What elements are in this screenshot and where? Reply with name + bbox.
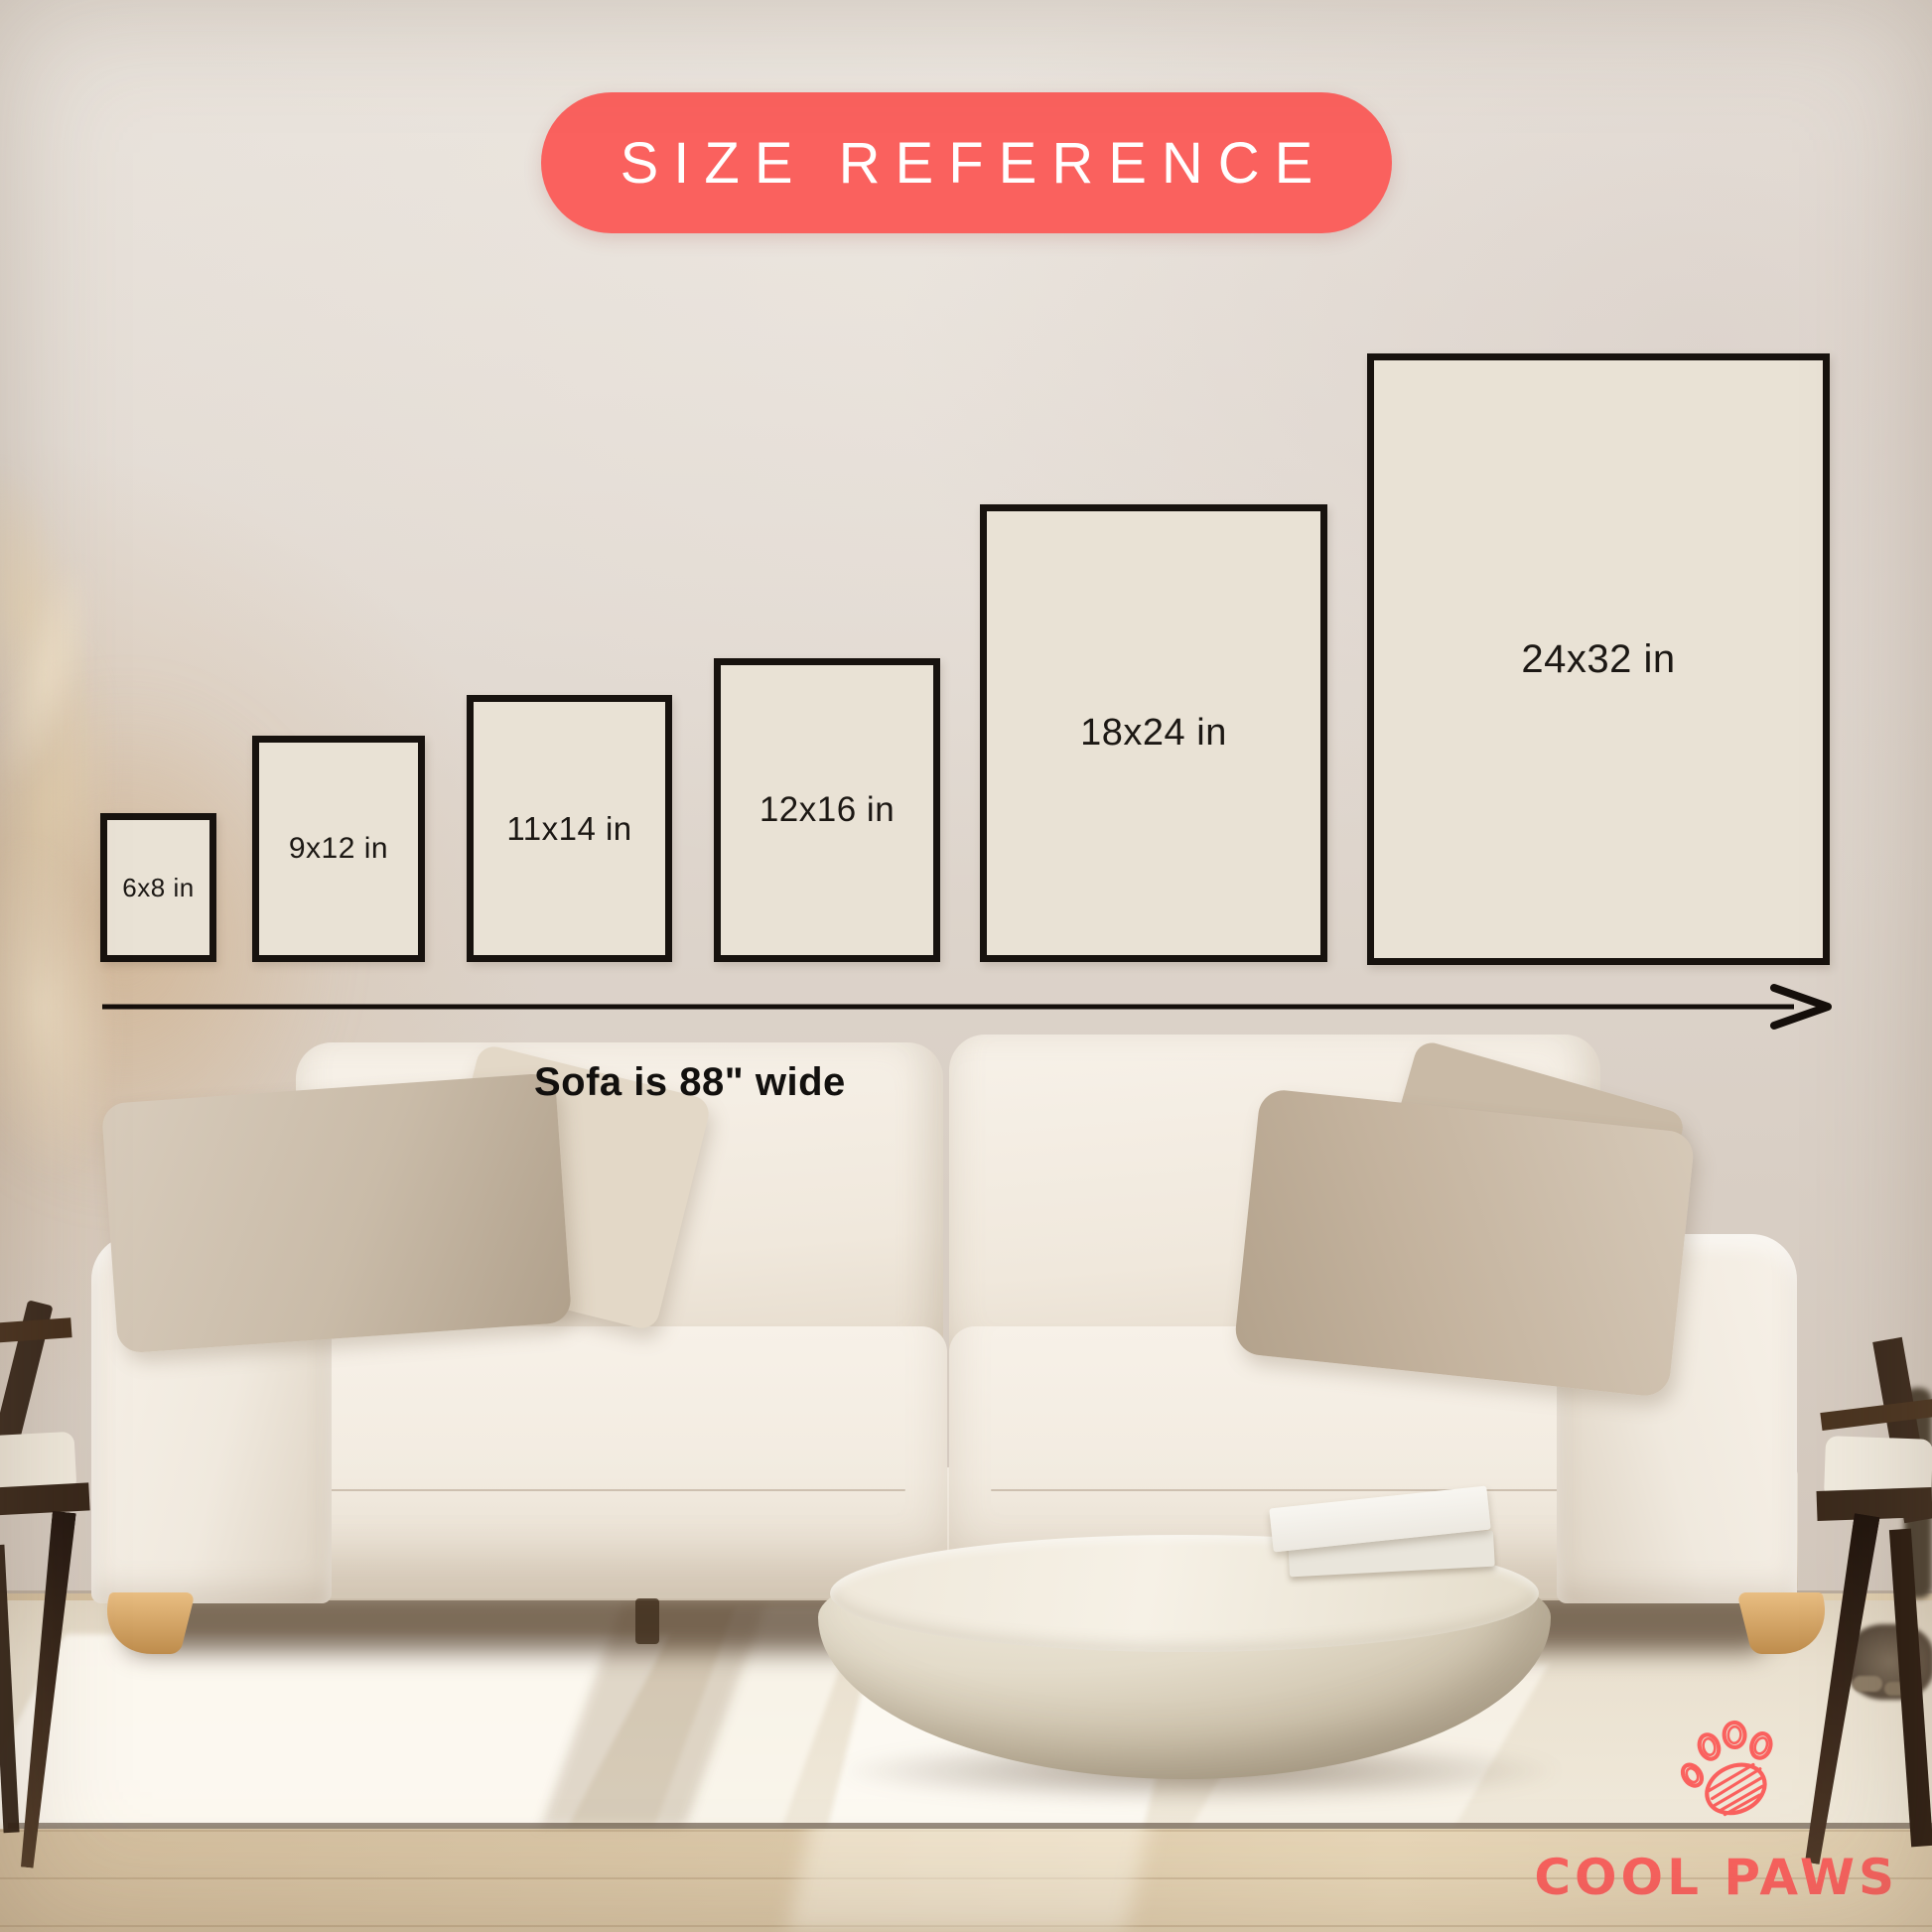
size-reference-graphic: SIZE REFERENCE 6x8 in 9x12 in 11x14 in 1…	[0, 0, 1932, 1932]
size-label: 12x16 in	[759, 790, 895, 830]
size-reference-badge: SIZE REFERENCE	[541, 92, 1392, 233]
size-frame-24x32: 24x32 in	[1367, 353, 1830, 965]
brand-name: COOL PAWS	[1534, 1849, 1898, 1906]
size-frame-12x16: 12x16 in	[714, 658, 940, 962]
throw-pillow	[101, 1072, 572, 1353]
size-frame-18x24: 18x24 in	[980, 504, 1327, 962]
left-chair-seat-frame	[0, 1482, 90, 1515]
size-label: 24x32 in	[1521, 637, 1675, 682]
right-chair-seat-frame	[1817, 1487, 1932, 1521]
sofa-leg	[635, 1598, 659, 1644]
size-label: 18x24 in	[1080, 712, 1227, 755]
cat-paw	[1853, 1676, 1882, 1692]
size-label: 11x14 in	[506, 810, 631, 848]
size-label: 6x8 in	[122, 873, 194, 903]
size-label: 9x12 in	[289, 832, 388, 866]
rug-edge-line	[8, 1823, 1932, 1829]
size-frame-6x8: 6x8 in	[100, 813, 216, 962]
throw-pillow	[1233, 1088, 1696, 1399]
width-arrow-icon	[94, 981, 1842, 1033]
sofa-seat-cushion-left	[246, 1326, 947, 1598]
size-frame-11x14: 11x14 in	[467, 695, 672, 962]
paw-print-icon	[1671, 1715, 1787, 1831]
size-frame-9x12: 9x12 in	[252, 736, 425, 962]
size-reference-title: SIZE REFERENCE	[606, 130, 1328, 197]
sofa-width-note: Sofa is 88" wide	[534, 1060, 846, 1105]
